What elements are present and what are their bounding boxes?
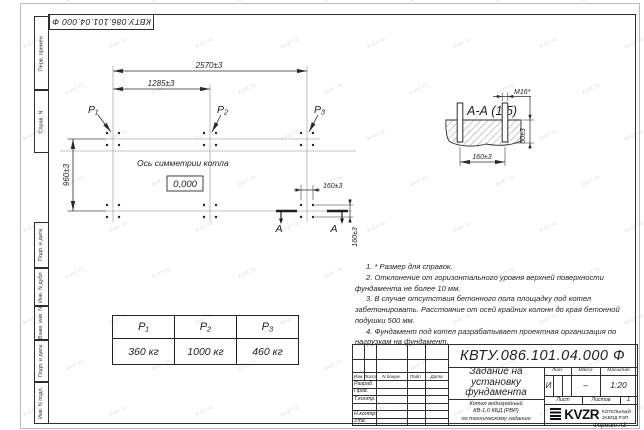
load-table-value-row: 360 кг 1000 кг 460 кг [113, 339, 299, 365]
note-3: 3. В случае отсутствия бетонного пола пл… [355, 294, 633, 326]
sig-row-tkontr: Т.контр. [354, 395, 376, 403]
load-point-2-label: P₂ [217, 104, 228, 116]
dim-bolt-x-label: 160±3 [323, 183, 343, 190]
sheets-value: 1 [620, 396, 637, 404]
lit-header: Лит. [544, 367, 571, 375]
sig-row-nkontr: Н.контр. [354, 410, 376, 418]
load-table-header-row: P₁ P₂ P₃ [113, 316, 299, 339]
axis-of-symmetry-label: Ось симметрии котла [137, 158, 229, 168]
note-2: 2. Отклонение от горизонтального уровня … [355, 273, 633, 295]
rev-header-podp: Подп. [407, 372, 425, 380]
document-title: Задание на установку фундамента [448, 367, 544, 399]
load-point-1-label: P₁ [88, 104, 99, 116]
rev-header-data: Дата [425, 372, 448, 380]
load-table-header-p3: P₃ [237, 316, 299, 339]
document-designation: КВТУ.086.101.04.000 Ф [448, 345, 637, 367]
format-label: Формат А3 [583, 423, 636, 429]
plan-dimension-lines [68, 71, 353, 223]
dim-half-label: 1285±3 [148, 79, 175, 88]
rev-header-list: Лист [364, 372, 376, 380]
technical-notes: 1. * Размер для справок. 2. Отклонение о… [355, 262, 633, 348]
mass-header: Масса [571, 367, 600, 375]
company-name: КОТЕЛЬНЫЙ ЗАВОД РЭП [602, 409, 631, 420]
load-table-header-p2: P₂ [175, 316, 237, 339]
load-value-p2: 1000 кг [175, 339, 237, 365]
load-table: P₁ P₂ P₃ 360 кг 1000 кг 460 кг [112, 315, 299, 365]
title-block: Изм. Лист N докум. Подп. Дата Разраб. Пр… [352, 344, 638, 426]
anchor-bolt-left [457, 103, 463, 142]
dim-bolt-y-label: 160±3 [352, 227, 359, 247]
load-value-p3: 460 кг [237, 339, 299, 365]
rev-header-izm: Изм. [353, 372, 364, 380]
dim-total-label: 2570±3 [195, 61, 223, 70]
sig-row-blank [354, 403, 376, 411]
scale-header: Масштаб [600, 367, 637, 375]
plan-small-arrows [296, 188, 352, 222]
object-description: Котел водогрейный КВ-1,0 КБД (РВР) по те… [448, 399, 544, 425]
scale-value: 1:20 [600, 375, 637, 397]
load-value-p1: 360 кг [113, 339, 175, 365]
sheets-label: Листов [582, 396, 620, 404]
section-dim-height-label: 50±3 [520, 128, 527, 144]
lit-value: И [544, 375, 553, 397]
kvzr-logo-text: KVZR [564, 407, 599, 422]
section-dim-width-label: 160±3 [472, 154, 492, 161]
dim-depth-label: 960±3 [62, 163, 71, 186]
mass-value: – [571, 375, 600, 397]
rev-header-ndokum: N докум. [376, 372, 407, 380]
anchor-bolt-right [502, 103, 508, 142]
level-mark-value: 0,000 [173, 179, 197, 190]
note-1: 1. * Размер для справок. [355, 262, 633, 273]
sig-row-utv: Утв. [354, 418, 376, 426]
drawing-sheet: kvzr.rukvzr.rukvzr.rukvzr.rukvzr.rukvzr.… [0, 0, 644, 430]
load-point-3-label: P₃ [314, 104, 325, 116]
company-logo-cell: KVZR КОТЕЛЬНЫЙ ЗАВОД РЭП [544, 404, 637, 425]
bolt-thread-label: M16* [514, 89, 531, 96]
sig-row-prov: Пров. [354, 388, 376, 396]
sig-row-razrab: Разраб. [354, 380, 376, 388]
sheet-label: Лист [544, 396, 582, 404]
section-letter-left: А [274, 223, 282, 235]
load-table-header-p1: P₁ [113, 316, 175, 339]
section-title: А-А (1:5) [466, 104, 517, 118]
kvzr-coil-icon [550, 408, 561, 421]
section-letter-right: А [329, 223, 337, 235]
